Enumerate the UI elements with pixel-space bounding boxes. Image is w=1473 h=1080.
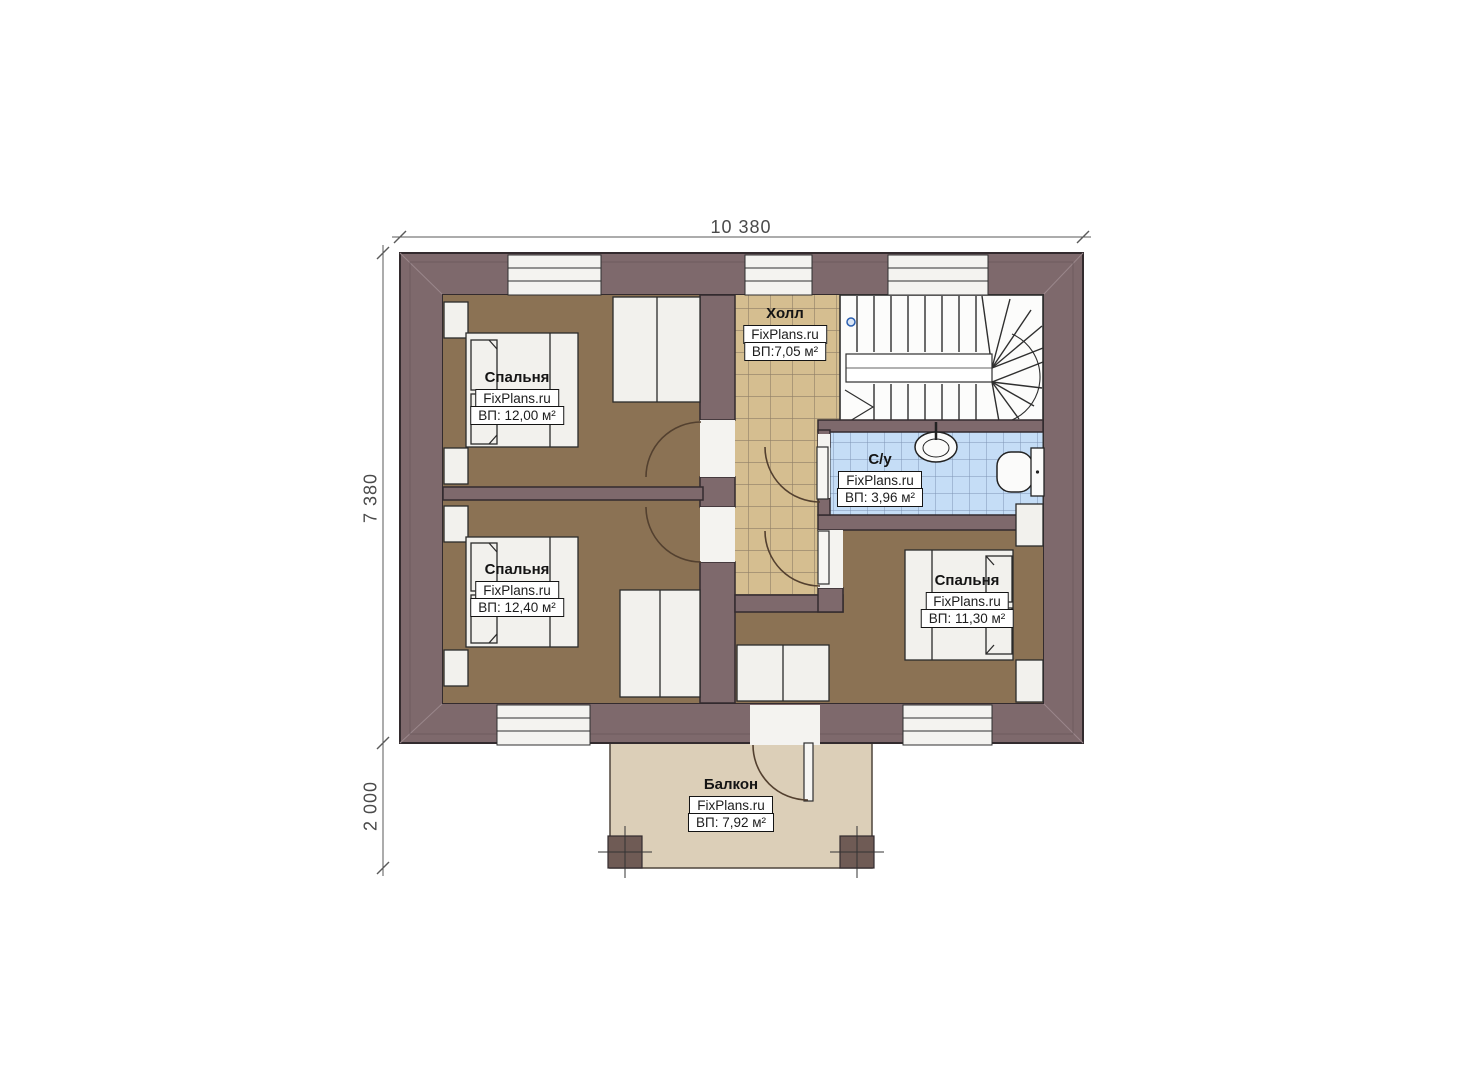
- room-area: ВП: 12,40 м²: [470, 598, 564, 617]
- watermark: FixPlans.ru: [475, 389, 559, 408]
- nightstand: [444, 506, 468, 542]
- room-area: ВП: 3,96 м²: [837, 488, 923, 507]
- nightstand: [1016, 504, 1043, 546]
- watermark: FixPlans.ru: [838, 471, 922, 490]
- dimension-height-main: 7 380: [361, 473, 382, 523]
- room-name: Холл: [766, 305, 804, 322]
- toilet: [997, 448, 1044, 496]
- watermark: FixPlans.ru: [689, 796, 773, 815]
- window: [497, 705, 590, 745]
- dimension-height-balcony: 2 000: [361, 781, 382, 831]
- room-label-balcony: Балкон FixPlans.ru ВП: 7,92 м²: [688, 776, 774, 832]
- window: [903, 705, 992, 745]
- room-label-bedroom-1: Спальня FixPlans.ru ВП: 12,00 м²: [470, 369, 564, 425]
- nightstand: [444, 302, 468, 338]
- room-area: ВП: 12,00 м²: [470, 406, 564, 425]
- watermark: FixPlans.ru: [925, 592, 1009, 611]
- room-name: Спальня: [485, 369, 550, 386]
- stair-walkline-marker: [847, 318, 855, 326]
- wardrobe: [620, 590, 700, 697]
- room-label-bedroom-2: Спальня FixPlans.ru ВП: 12,40 м²: [470, 561, 564, 617]
- watermark: FixPlans.ru: [743, 325, 827, 344]
- room-label-hall: Холл FixPlans.ru ВП:7,05 м²: [743, 305, 827, 361]
- room-label-bathroom: С/у FixPlans.ru ВП: 3,96 м²: [837, 451, 923, 507]
- room-label-bedroom-3: Спальня FixPlans.ru ВП: 11,30 м²: [921, 572, 1014, 628]
- door-leaf-balcony: [804, 743, 813, 801]
- nightstand: [444, 650, 468, 686]
- balcony-door-opening: [750, 705, 820, 745]
- floor-plan-drawing: [0, 0, 1473, 1080]
- wardrobe: [737, 645, 829, 701]
- room-area: ВП: 11,30 м²: [921, 609, 1014, 628]
- staircase: [840, 295, 1043, 428]
- nightstand: [444, 448, 468, 484]
- room-name: Спальня: [485, 561, 550, 578]
- room-name: Спальня: [935, 572, 1000, 589]
- room-name: С/у: [868, 451, 891, 468]
- wardrobe: [613, 297, 700, 402]
- room-area: ВП: 7,92 м²: [688, 813, 774, 832]
- nightstand: [1016, 660, 1043, 702]
- floor-plan-page: 10 380 7 380 2 000 Спальня FixPlans.ru В…: [0, 0, 1473, 1080]
- dimension-width-total: 10 380: [710, 217, 771, 238]
- window: [888, 255, 988, 295]
- door-leaf-bathroom: [817, 447, 828, 499]
- window: [508, 255, 601, 295]
- room-name: Балкон: [704, 776, 758, 793]
- watermark: FixPlans.ru: [475, 581, 559, 600]
- room-area: ВП:7,05 м²: [744, 342, 826, 361]
- door-leaf-bedroom-3: [818, 531, 829, 584]
- window: [745, 255, 812, 295]
